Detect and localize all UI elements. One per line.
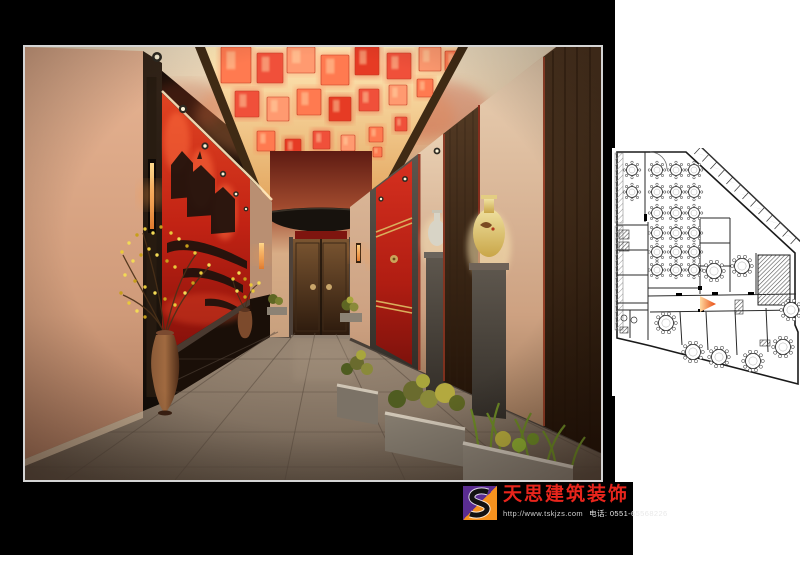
vignette: [25, 47, 601, 480]
corridor-scene: [25, 47, 601, 480]
stage-block: [758, 255, 790, 305]
facade-column-symbol: [783, 230, 794, 240]
company-logo-block: 天思建筑装饰 http://www.tskjzs.com电话: 0551-655…: [463, 484, 633, 528]
company-name: 天思建筑装饰: [503, 484, 668, 506]
company-contact-line: http://www.tskjzs.com电话: 0551-65568226: [503, 508, 668, 519]
company-website: http://www.tskjzs.com: [503, 509, 583, 518]
company-logo-icon: [463, 486, 497, 520]
logo-s-glyph: [463, 486, 497, 520]
hatch-strip-2: [615, 226, 623, 330]
corridor-rendering-photo: [23, 45, 603, 482]
company-phone: 电话: 0551-65568226: [589, 509, 668, 518]
presentation-page: { "logo": { "company_name": "天思建筑装饰", "w…: [0, 0, 800, 565]
company-logo-texts: 天思建筑装饰 http://www.tskjzs.com电话: 0551-655…: [503, 484, 668, 519]
hatch-strip-1: [615, 153, 623, 223]
floor-plan: [612, 148, 800, 396]
floor-plan-drawing: [612, 148, 800, 396]
